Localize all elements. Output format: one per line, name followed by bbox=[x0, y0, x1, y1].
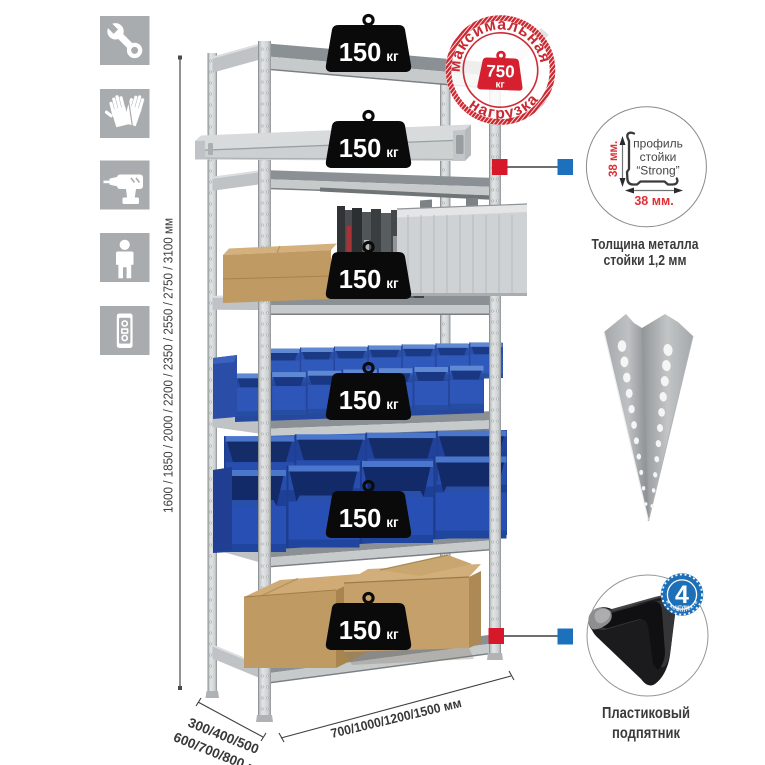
svg-text:38 мм.: 38 мм. bbox=[608, 141, 620, 177]
svg-text:кг: кг bbox=[495, 79, 505, 90]
svg-text:кг: кг bbox=[386, 397, 399, 412]
svg-text:стойки: стойки bbox=[640, 150, 677, 164]
svg-text:стойки 1,2 мм: стойки 1,2 мм bbox=[604, 253, 687, 269]
svg-text:150: 150 bbox=[339, 39, 382, 67]
svg-text:38 мм.: 38 мм. bbox=[634, 194, 673, 208]
svg-text:штуки: штуки bbox=[675, 604, 689, 609]
svg-text:“Strong”: “Strong” bbox=[636, 164, 679, 178]
svg-text:1600 / 1850 / 2000 / 2200 / 23: 1600 / 1850 / 2000 / 2200 / 2350 / 2550 … bbox=[161, 218, 176, 513]
svg-text:кг: кг bbox=[386, 49, 399, 64]
svg-text:подпятник: подпятник bbox=[612, 725, 681, 742]
svg-text:кг: кг bbox=[386, 515, 399, 530]
svg-text:кг: кг bbox=[386, 276, 399, 291]
svg-text:150: 150 bbox=[339, 135, 382, 163]
svg-text:150: 150 bbox=[339, 387, 382, 415]
svg-text:Толщина металла: Толщина металла bbox=[592, 237, 700, 253]
svg-text:кг: кг bbox=[386, 145, 399, 160]
svg-text:150: 150 bbox=[339, 617, 382, 645]
svg-text:750: 750 bbox=[486, 62, 515, 82]
svg-text:профиль: профиль bbox=[633, 137, 683, 151]
svg-text:150: 150 bbox=[339, 505, 382, 533]
svg-text:150: 150 bbox=[339, 266, 382, 294]
svg-text:кг: кг bbox=[386, 627, 399, 642]
svg-text:Пластиковый: Пластиковый bbox=[602, 705, 690, 722]
